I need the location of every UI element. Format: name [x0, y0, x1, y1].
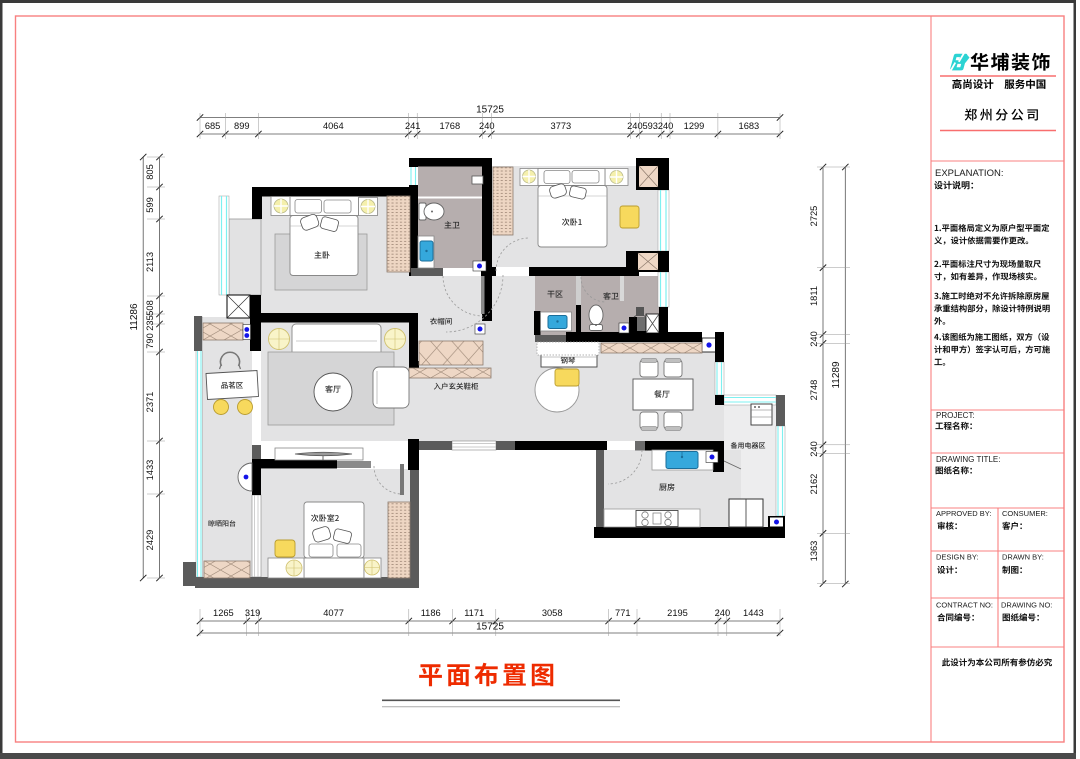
svg-text:2113: 2113	[145, 252, 155, 272]
svg-text:15725: 15725	[476, 105, 504, 116]
svg-text:1265: 1265	[213, 608, 234, 618]
svg-text:DRAWING TITLE:: DRAWING TITLE:	[936, 455, 1000, 464]
svg-text:4077: 4077	[323, 608, 344, 618]
svg-text:790: 790	[145, 333, 155, 349]
svg-text:1433: 1433	[145, 460, 155, 481]
svg-text:2195: 2195	[667, 608, 688, 618]
svg-text:2748: 2748	[809, 380, 819, 401]
svg-text:2429: 2429	[145, 530, 155, 551]
svg-text:PROJECT:: PROJECT:	[936, 411, 975, 420]
svg-text:319: 319	[245, 608, 261, 618]
svg-text:EXPLANATION:: EXPLANATION:	[935, 168, 1003, 179]
svg-text:3773: 3773	[551, 121, 572, 131]
svg-text:1186: 1186	[421, 608, 441, 618]
svg-text:599: 599	[145, 197, 155, 213]
svg-text:805: 805	[145, 164, 155, 180]
svg-text:1768: 1768	[439, 121, 460, 131]
svg-text:DRAWING NO:: DRAWING NO:	[1001, 601, 1052, 610]
svg-text:APPROVED BY:: APPROVED BY:	[936, 509, 991, 518]
svg-text:DESIGN BY:: DESIGN BY:	[936, 553, 979, 562]
svg-text:685: 685	[205, 121, 221, 131]
svg-text:1443: 1443	[743, 608, 764, 618]
svg-text:240: 240	[809, 331, 819, 347]
svg-text:240: 240	[658, 121, 674, 131]
svg-text:235: 235	[145, 315, 155, 331]
svg-text:3058: 3058	[542, 608, 563, 618]
svg-text:DRAWN BY:: DRAWN BY:	[1002, 553, 1044, 562]
svg-text:4064: 4064	[323, 121, 344, 131]
svg-text:593: 593	[642, 121, 658, 131]
svg-text:899: 899	[234, 121, 250, 131]
svg-text:240: 240	[627, 121, 643, 131]
svg-text:CONTRACT NO:: CONTRACT NO:	[936, 601, 993, 610]
svg-text:241: 241	[405, 121, 421, 131]
svg-text:2371: 2371	[145, 392, 155, 413]
svg-text:2162: 2162	[809, 474, 819, 495]
svg-text:508: 508	[145, 300, 155, 316]
svg-text:240: 240	[809, 441, 819, 457]
svg-text:1363: 1363	[809, 541, 819, 562]
svg-text:1683: 1683	[739, 121, 760, 131]
svg-text:11289: 11289	[831, 361, 842, 389]
svg-text:15725: 15725	[476, 622, 504, 633]
svg-text:240: 240	[479, 121, 495, 131]
svg-text:1171: 1171	[464, 608, 484, 618]
svg-text:CONSUMER:: CONSUMER:	[1002, 509, 1048, 518]
svg-text:2725: 2725	[809, 206, 819, 227]
svg-text:11286: 11286	[129, 303, 140, 331]
svg-text:1811: 1811	[809, 286, 819, 306]
svg-text:240: 240	[715, 608, 731, 618]
svg-text:771: 771	[615, 608, 631, 618]
svg-text:1299: 1299	[684, 121, 705, 131]
